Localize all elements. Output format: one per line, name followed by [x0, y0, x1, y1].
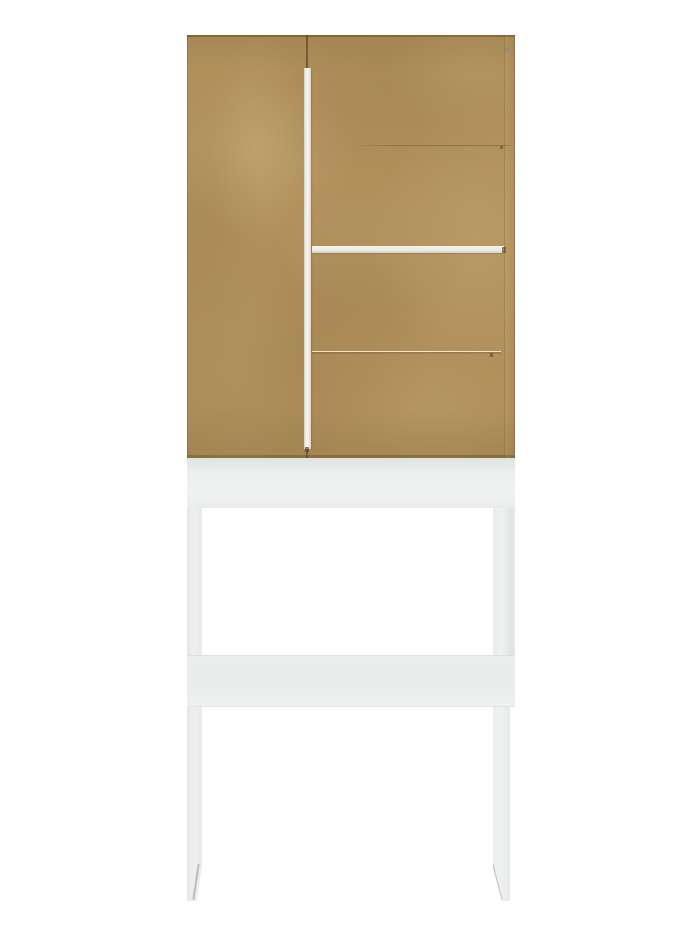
vertical-door-handle [304, 68, 311, 449]
product-photo [0, 0, 700, 933]
horizontal-door-handle [312, 246, 504, 253]
right-leg-foot [493, 707, 510, 901]
cabinet-right-side-shade [505, 35, 515, 458]
door-gap-seam-top [306, 35, 308, 68]
hinge-screw-dot [505, 47, 509, 51]
right-door-lower-seam [312, 351, 501, 354]
cabinet-upper-unit [187, 35, 515, 458]
apron-panel [187, 458, 515, 508]
cabinet-right-side-seam [504, 35, 505, 458]
left-door [187, 35, 306, 458]
crossbar-panel [187, 655, 515, 707]
right-door-upper-seam [352, 145, 512, 146]
